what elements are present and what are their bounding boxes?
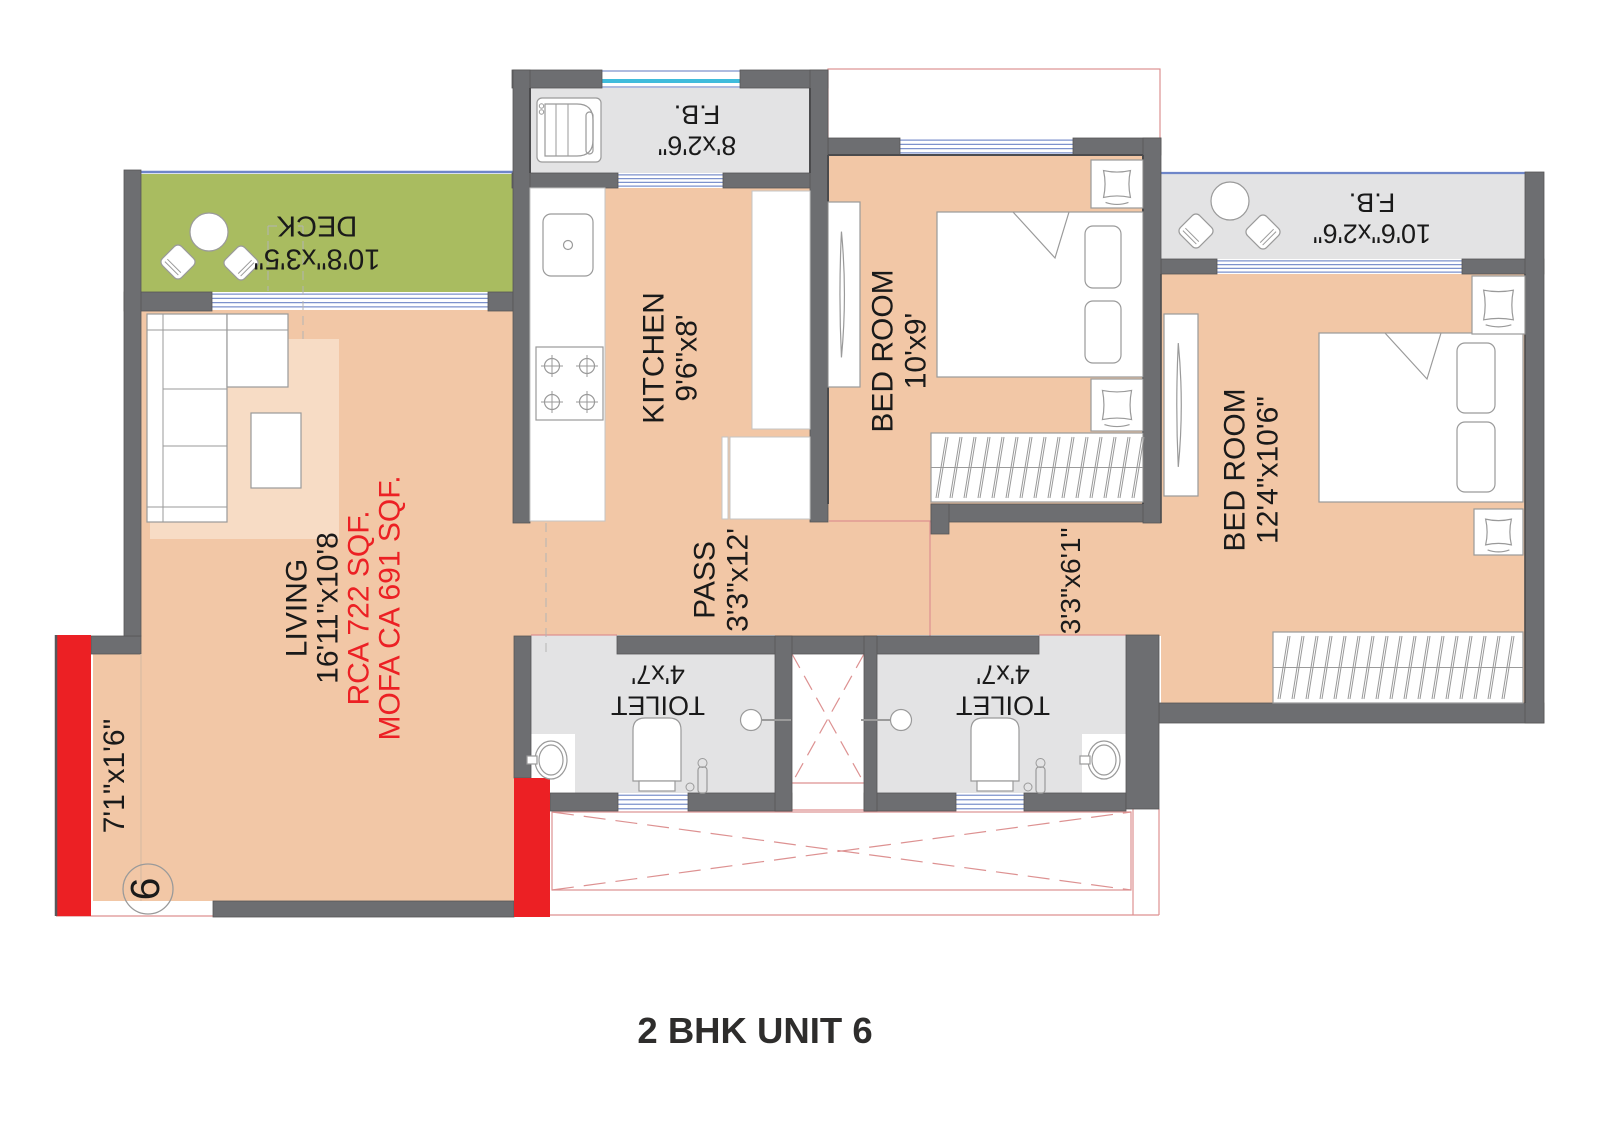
svg-text:3'3"x6'1": 3'3"x6'1": [1055, 528, 1086, 635]
svg-text:6: 6: [122, 878, 168, 901]
svg-text:PASS3'3"x12': PASS3'3"x12': [688, 528, 754, 632]
svg-text:7'1"x1'6": 7'1"x1'6": [98, 719, 131, 834]
svg-text:BED ROOM12'4"x10'6": BED ROOM12'4"x10'6": [1218, 388, 1284, 551]
svg-text:2 BHK UNIT 6: 2 BHK UNIT 6: [637, 1010, 872, 1051]
